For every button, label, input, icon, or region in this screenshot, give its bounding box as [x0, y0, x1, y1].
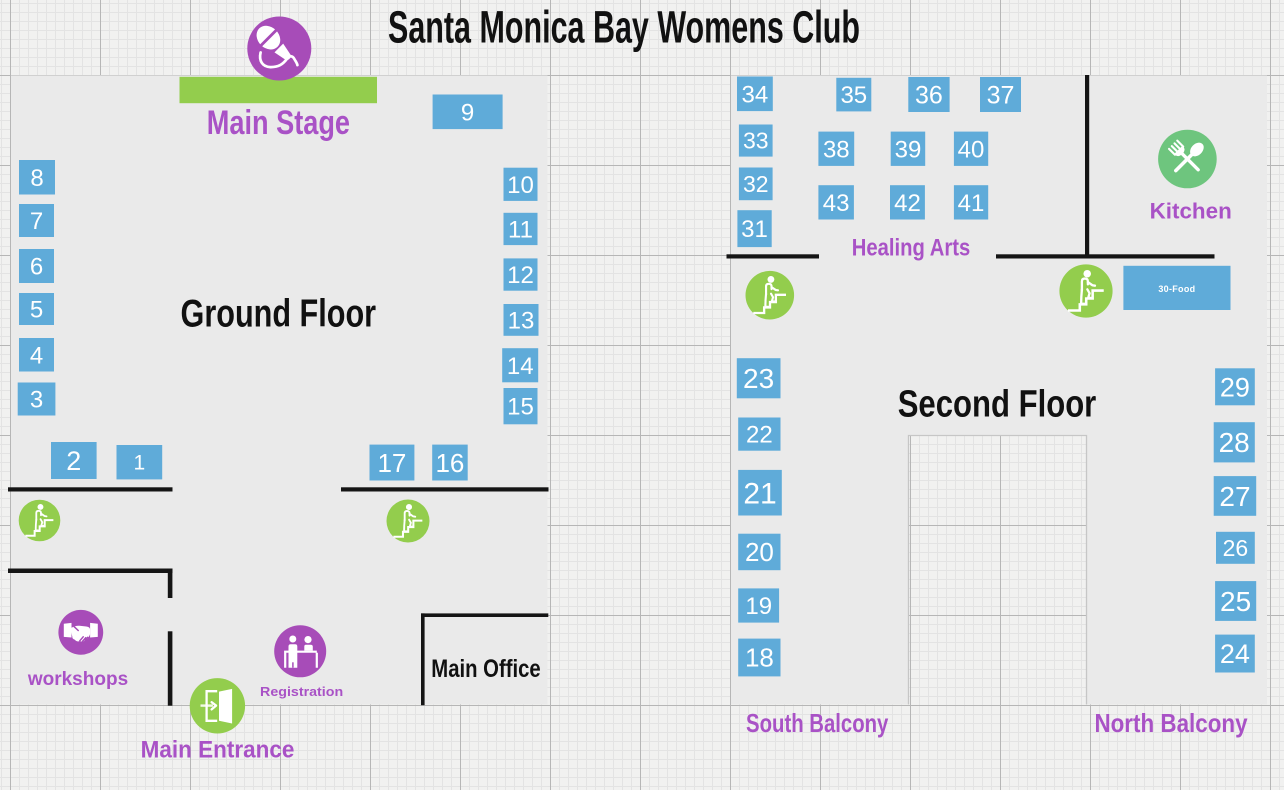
svg-text:2: 2 — [66, 446, 81, 476]
svg-text:33: 33 — [743, 128, 769, 154]
svg-text:14: 14 — [507, 353, 534, 380]
svg-text:Main Stage: Main Stage — [207, 104, 350, 142]
svg-text:20: 20 — [745, 537, 774, 567]
svg-text:17: 17 — [377, 448, 406, 478]
svg-text:26: 26 — [1223, 535, 1249, 561]
svg-text:42: 42 — [894, 190, 921, 217]
svg-text:30-Food: 30-Food — [1158, 284, 1195, 294]
svg-text:Healing Arts: Healing Arts — [852, 235, 970, 262]
svg-text:23: 23 — [743, 363, 774, 394]
svg-text:27: 27 — [1219, 481, 1250, 512]
svg-text:Ground Floor: Ground Floor — [181, 293, 377, 336]
svg-text:12: 12 — [507, 262, 534, 289]
svg-text:Main Office: Main Office — [431, 655, 540, 683]
svg-text:Kitchen: Kitchen — [1150, 199, 1232, 224]
svg-text:25: 25 — [1220, 586, 1251, 617]
svg-text:13: 13 — [508, 307, 535, 334]
svg-text:11: 11 — [508, 217, 533, 244]
svg-text:36: 36 — [915, 81, 943, 109]
svg-text:32: 32 — [743, 171, 769, 197]
svg-text:Second Floor: Second Floor — [898, 384, 1097, 426]
svg-text:4: 4 — [30, 342, 43, 369]
svg-text:15: 15 — [507, 394, 534, 421]
svg-text:16: 16 — [435, 448, 464, 478]
svg-text:3: 3 — [30, 387, 43, 414]
svg-text:18: 18 — [745, 643, 774, 673]
svg-text:39: 39 — [895, 136, 922, 163]
svg-text:43: 43 — [823, 190, 850, 217]
svg-text:South Balcony: South Balcony — [746, 708, 889, 738]
svg-text:workshops: workshops — [27, 669, 128, 690]
svg-text:7: 7 — [30, 208, 43, 235]
svg-text:9: 9 — [461, 99, 474, 126]
svg-text:22: 22 — [746, 422, 773, 449]
svg-text:North Balcony: North Balcony — [1094, 708, 1248, 738]
svg-text:35: 35 — [840, 82, 867, 109]
svg-text:41: 41 — [958, 190, 985, 217]
svg-text:8: 8 — [30, 165, 43, 192]
svg-text:Registration: Registration — [260, 684, 343, 699]
svg-text:31: 31 — [741, 216, 768, 243]
svg-text:6: 6 — [30, 254, 43, 281]
svg-text:40: 40 — [958, 136, 985, 163]
svg-text:37: 37 — [987, 81, 1015, 109]
svg-text:10: 10 — [507, 172, 534, 199]
svg-text:5: 5 — [30, 297, 43, 324]
svg-text:28: 28 — [1219, 427, 1250, 458]
svg-text:38: 38 — [823, 136, 850, 163]
svg-text:29: 29 — [1220, 372, 1250, 402]
svg-text:Main Entrance: Main Entrance — [141, 736, 295, 763]
svg-text:24: 24 — [1220, 639, 1250, 669]
svg-text:21: 21 — [743, 477, 776, 510]
svg-text:Santa Monica Bay Womens Club: Santa Monica Bay Womens Club — [388, 2, 860, 53]
svg-text:34: 34 — [742, 81, 769, 108]
svg-text:19: 19 — [745, 593, 772, 620]
svg-text:1: 1 — [133, 452, 145, 475]
